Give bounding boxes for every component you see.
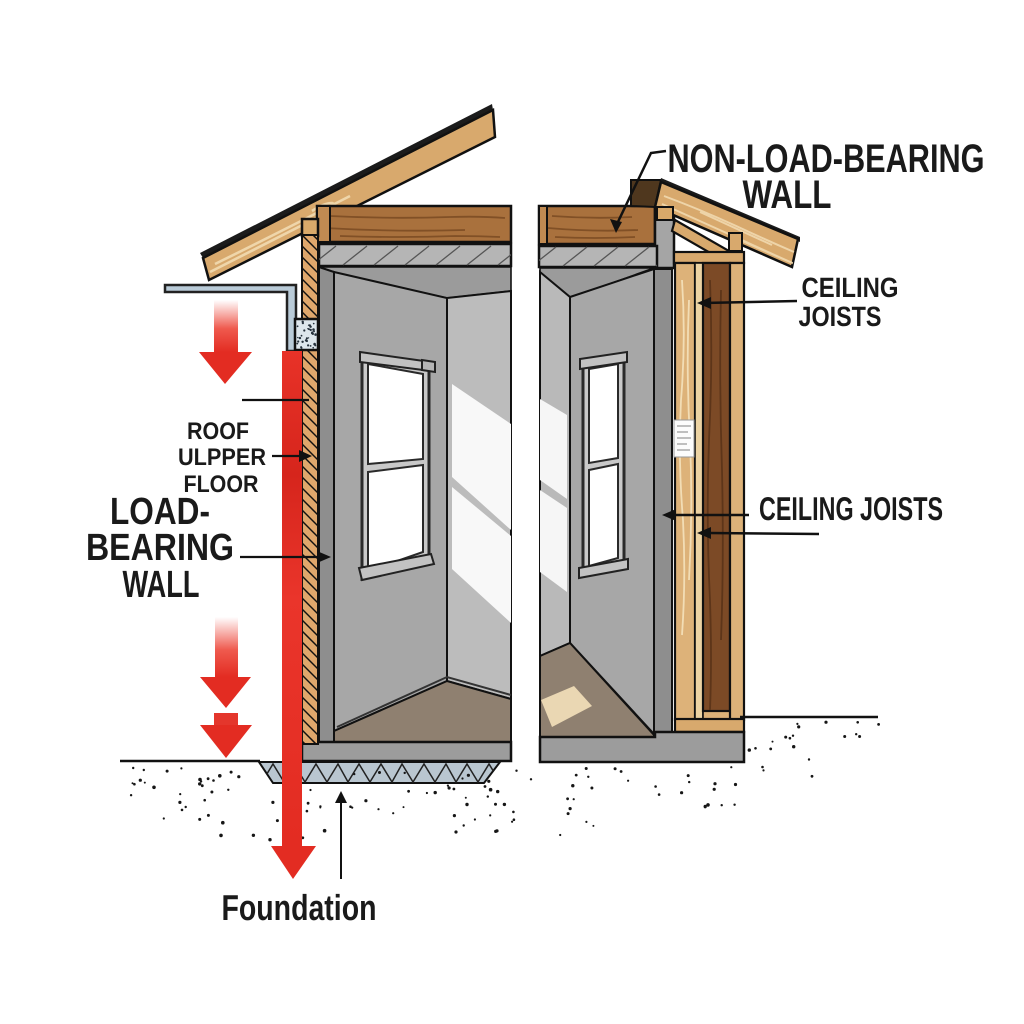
svg-text:WALL: WALL: [743, 173, 832, 217]
svg-text:ULPPER: ULPPER: [178, 444, 266, 471]
svg-text:BEARING: BEARING: [86, 527, 234, 569]
svg-text:CEILING: CEILING: [802, 272, 899, 303]
svg-text:WALL: WALL: [123, 564, 200, 606]
svg-text:CEILING JOISTS: CEILING JOISTS: [759, 490, 943, 527]
svg-text:JOISTS: JOISTS: [799, 301, 882, 332]
svg-text:Foundation: Foundation: [222, 887, 377, 928]
svg-text:ROOF: ROOF: [187, 418, 249, 445]
